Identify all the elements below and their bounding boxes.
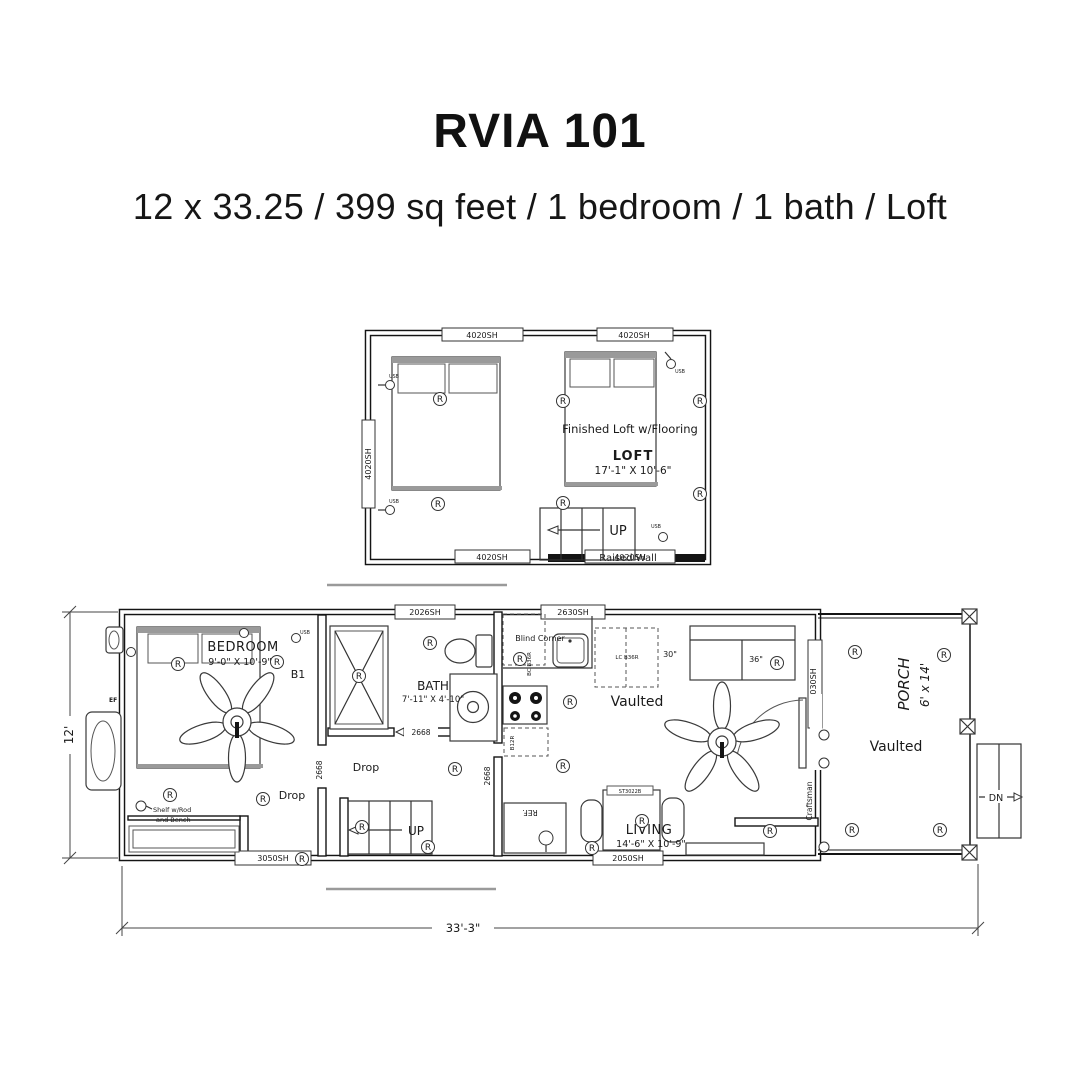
- upper-30-label: 30": [663, 650, 677, 659]
- loft-window-bottom: 4020SH: [455, 550, 530, 563]
- outlet: [240, 629, 249, 638]
- porch-post: [960, 719, 975, 734]
- svg-text:R: R: [299, 855, 305, 865]
- porch-vaulted-label: Vaulted: [870, 739, 923, 755]
- svg-text:R: R: [560, 499, 566, 509]
- blind-corner-label: Blind Corner: [515, 634, 565, 643]
- bath-door-label: 2668: [411, 728, 430, 737]
- svg-text:USB: USB: [300, 630, 310, 636]
- outlet: [819, 758, 829, 768]
- b12-cabinet-label: B12R: [510, 736, 516, 751]
- recessed-light-symbol: R: [422, 841, 435, 854]
- outlet: [127, 648, 136, 657]
- loft-dims-label: 17'-1" X 10'-6": [595, 465, 672, 477]
- window-2050: 2050SH: [593, 851, 663, 865]
- svg-text:R: R: [175, 660, 181, 670]
- porch-post: [962, 845, 977, 860]
- porch-steps: DN: [977, 744, 1022, 838]
- svg-text:R: R: [697, 490, 703, 500]
- svg-text:R: R: [567, 698, 573, 708]
- dimension-length: 33'-3": [116, 864, 984, 936]
- svg-text:R: R: [356, 672, 362, 682]
- living-room-label: LIVING: [626, 823, 673, 838]
- bedroom-door-label: 2668: [315, 760, 324, 779]
- recessed-light-symbol: R: [564, 696, 577, 709]
- svg-text:R: R: [937, 826, 943, 836]
- svg-text:2026SH: 2026SH: [409, 608, 440, 617]
- recessed-light-symbol: R: [257, 793, 270, 806]
- main-up-label: UP: [408, 824, 424, 838]
- outlet: [819, 730, 829, 740]
- svg-text:USB: USB: [651, 524, 661, 530]
- hall-door-label: 2668: [483, 766, 492, 785]
- stove: [503, 686, 547, 724]
- recessed-light-symbol: R: [514, 653, 527, 666]
- table-tag-label: ST3022B: [619, 789, 642, 795]
- svg-text:R: R: [560, 397, 566, 407]
- recessed-light-symbol: R: [353, 670, 366, 683]
- svg-text:R: R: [697, 397, 703, 407]
- loft-window-bottom-label: 4020SH: [476, 553, 507, 562]
- svg-text:R: R: [425, 843, 431, 853]
- sofa-size-label: 36": [749, 655, 763, 664]
- bedroom-dims-label: 9'-0" X 10'-9": [208, 657, 272, 668]
- front-door-label: Craftsman: [805, 781, 814, 820]
- main-plan: DN PORCH 6' x 14' Vaulted 2668 2668 2668: [86, 605, 1022, 866]
- svg-text:USB: USB: [675, 369, 685, 375]
- recessed-light-symbol: R: [636, 815, 649, 828]
- recessed-light-symbol: R: [694, 395, 707, 408]
- svg-text:USB: USB: [389, 499, 399, 505]
- floorplan-drawing: 4020SH 4020SH 4020SH 4020SH 4020SH Raise…: [0, 0, 1080, 1080]
- svg-text:R: R: [517, 655, 523, 665]
- loft-flooring-note: Finished Loft w/Flooring: [562, 422, 698, 436]
- washer: [450, 674, 497, 741]
- bedroom-room-label: BEDROOM: [207, 640, 278, 655]
- length-dim-label: 33'-3": [446, 921, 481, 935]
- exhaust-fan-label: EF: [109, 697, 117, 704]
- svg-text:R: R: [359, 823, 365, 833]
- closet-note-1: Shelf w/Rod: [153, 806, 191, 814]
- svg-text:R: R: [435, 500, 441, 510]
- recessed-light-symbol: R: [938, 649, 951, 662]
- svg-text:USB: USB: [389, 374, 399, 380]
- porch-dn-label: DN: [989, 793, 1003, 804]
- dining-chair: [581, 800, 602, 842]
- fridge-label: REF.: [522, 808, 537, 817]
- svg-text:R: R: [452, 765, 458, 775]
- recessed-light-symbol: R: [164, 789, 177, 802]
- svg-text:R: R: [260, 795, 266, 805]
- loft-window-left: 4020SH: [362, 420, 375, 508]
- recessed-light-symbol: R: [356, 821, 369, 834]
- raised-wall-label: Raised Wall: [599, 553, 656, 564]
- recessed-light-symbol: R: [172, 658, 185, 671]
- bath-dims-label: 7'-11" X 4'-10": [402, 695, 464, 705]
- svg-text:R: R: [941, 651, 947, 661]
- exterior-fixture: [86, 712, 121, 790]
- recessed-light-symbol: R: [432, 498, 445, 511]
- loft-plan: 4020SH 4020SH 4020SH 4020SH 4020SH Raise…: [362, 328, 708, 564]
- wall-stairs-left: [340, 798, 348, 856]
- svg-text:R: R: [639, 817, 645, 827]
- width-dim-label: 12': [62, 726, 76, 745]
- loft-window-bottom-right: 4020SH Raised Wall: [585, 550, 675, 564]
- recessed-light-symbol: R: [586, 842, 599, 855]
- loft-room-label: LOFT: [613, 449, 654, 464]
- recessed-light-symbol: R: [557, 497, 570, 510]
- hall-drop-label: Drop: [353, 761, 379, 774]
- recessed-light-symbol: R: [424, 637, 437, 650]
- bc-cabinet-label: BC B36R: [527, 652, 533, 676]
- window-2630: 2630SH: [541, 605, 605, 619]
- recessed-light-symbol: R: [771, 657, 784, 670]
- wall-closet-stub: [240, 816, 248, 856]
- recessed-light-symbol: R: [434, 393, 447, 406]
- lc-cabinet-label: LC B36R: [615, 655, 638, 661]
- recessed-light-symbol: R: [764, 825, 777, 838]
- loft-window-top-left-label: 4020SH: [466, 331, 497, 340]
- svg-text:R: R: [852, 648, 858, 658]
- bedroom-drop-label: Drop: [279, 789, 305, 802]
- wall-hall-living: [494, 757, 502, 856]
- wall-bedroom-lower: [318, 788, 326, 856]
- loft-window-top-right-label: 4020SH: [618, 331, 649, 340]
- recessed-light-symbol: R: [557, 395, 570, 408]
- svg-text:2630SH: 2630SH: [557, 608, 588, 617]
- svg-text:R: R: [437, 395, 443, 405]
- svg-text:R: R: [589, 844, 595, 854]
- loft-bed-left: [392, 357, 502, 490]
- porch-room-label: PORCH: [895, 657, 913, 710]
- living-dims-label: 14'-6" X 10'-9": [616, 839, 686, 850]
- svg-text:R: R: [560, 762, 566, 772]
- loft-up-label: UP: [609, 524, 627, 539]
- recessed-light-symbol: R: [849, 646, 862, 659]
- bedroom-tag: B1: [291, 668, 306, 681]
- recessed-light-symbol: R: [846, 824, 859, 837]
- recessed-light-symbol: R: [296, 853, 309, 866]
- porch: DN PORCH 6' x 14' Vaulted: [818, 609, 1022, 860]
- exterior-light: [106, 627, 123, 653]
- porch-post: [962, 609, 977, 624]
- window-2026: 2026SH: [395, 605, 455, 619]
- living-vaulted-label: Vaulted: [611, 694, 664, 710]
- bench: [686, 843, 764, 855]
- floorplan-page: { "header": { "title": "RVIA 101", "subt…: [0, 0, 1080, 1080]
- recessed-light-symbol: R: [557, 760, 570, 773]
- wall-bedroom-bath: [318, 615, 326, 745]
- porch-dims-label: 6' x 14': [918, 663, 932, 707]
- svg-text:R: R: [767, 827, 773, 837]
- closet-note-2: and Bench: [156, 816, 191, 824]
- bath-room-label: BATH: [417, 679, 449, 693]
- svg-text:2050SH: 2050SH: [612, 854, 643, 863]
- recessed-light-symbol: R: [449, 763, 462, 776]
- fridge: REF.: [504, 803, 566, 853]
- svg-text:R: R: [427, 639, 433, 649]
- svg-text:3050SH: 3050SH: [257, 854, 288, 863]
- svg-text:R: R: [274, 658, 280, 668]
- svg-text:R: R: [774, 659, 780, 669]
- outlet: [819, 842, 829, 852]
- loft-window-top-right: 4020SH: [597, 328, 673, 341]
- recessed-light-symbol: R: [934, 824, 947, 837]
- svg-text:R: R: [849, 826, 855, 836]
- loft-window-left-label: 4020SH: [364, 448, 373, 479]
- recessed-light-symbol: R: [694, 488, 707, 501]
- loft-window-top-left: 4020SH: [442, 328, 523, 341]
- sofa: 36": [690, 626, 795, 680]
- recessed-light-symbol: R: [271, 656, 284, 669]
- svg-text:R: R: [167, 791, 173, 801]
